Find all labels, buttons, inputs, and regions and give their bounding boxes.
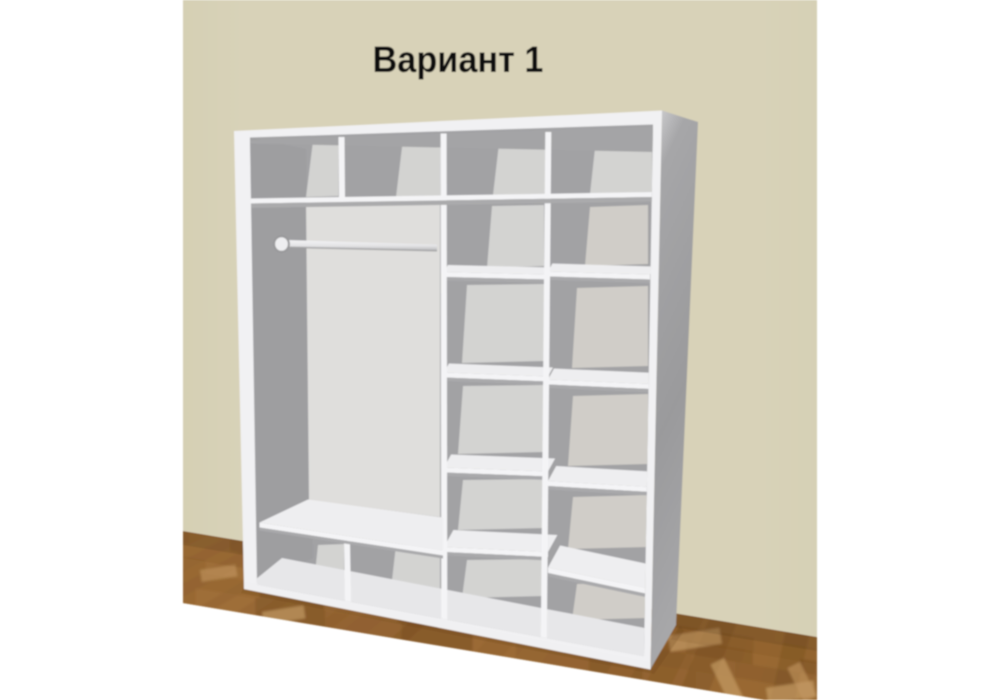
svg-text:Вариант 1: Вариант 1 [373, 39, 544, 80]
